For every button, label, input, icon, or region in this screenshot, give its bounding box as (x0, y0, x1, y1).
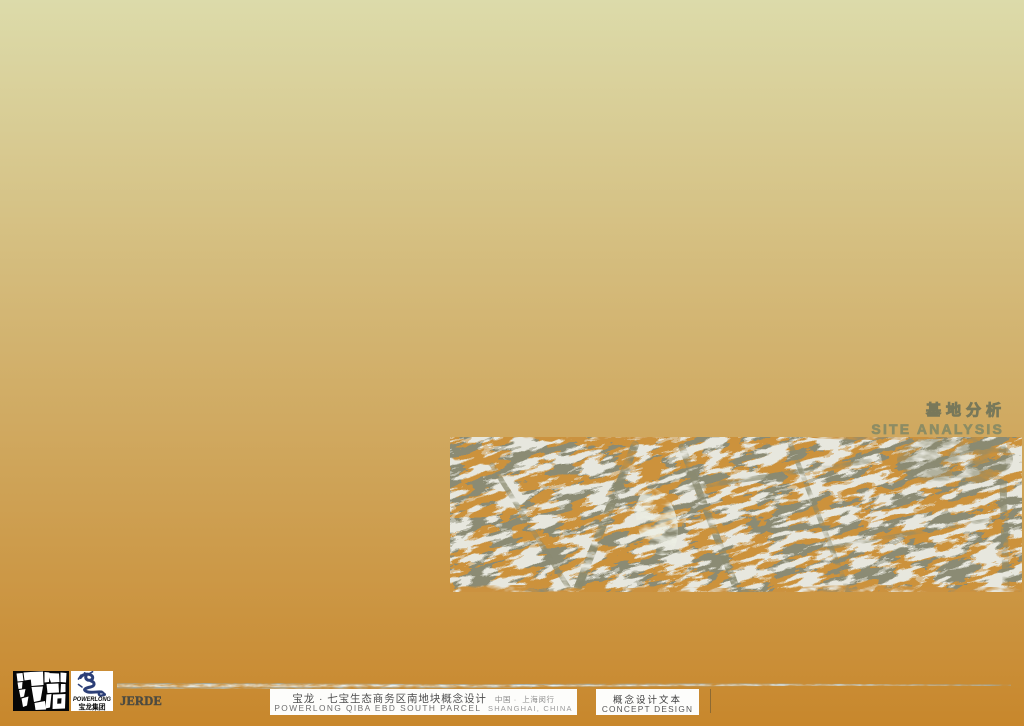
svg-text:宝龙集团: 宝龙集团 (79, 703, 106, 712)
